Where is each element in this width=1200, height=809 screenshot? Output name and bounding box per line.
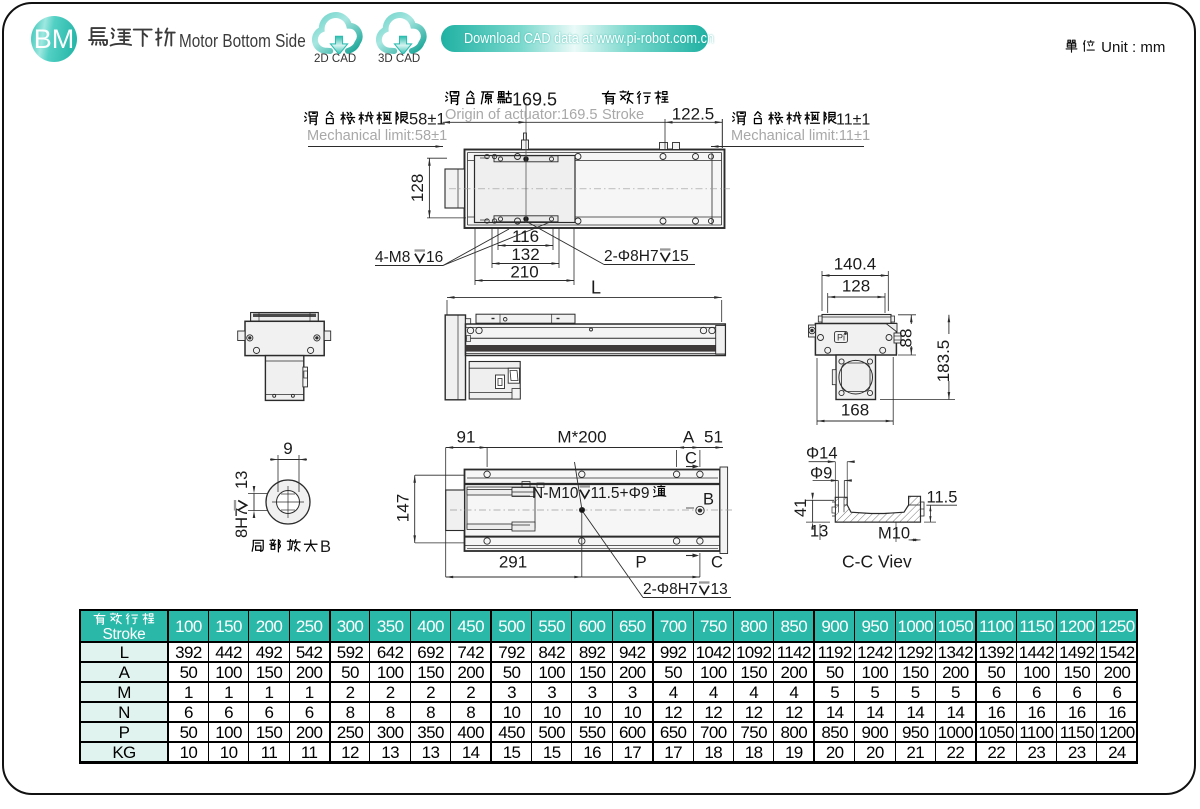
svg-text:Mechanical limit:58±1: Mechanical limit:58±1 <box>307 128 447 144</box>
svg-text:13: 13 <box>810 523 828 541</box>
svg-text:128: 128 <box>842 277 870 296</box>
svg-text:B: B <box>703 491 714 509</box>
svg-text:16: 16 <box>426 249 443 266</box>
svg-text:128: 128 <box>408 174 427 202</box>
svg-text:M*200: M*200 <box>557 428 606 447</box>
svg-text:13: 13 <box>711 581 728 598</box>
svg-text:Φ9: Φ9 <box>810 465 832 483</box>
svg-text:58±1: 58±1 <box>409 111 446 129</box>
svg-text:147: 147 <box>394 494 413 522</box>
svg-text:51: 51 <box>704 428 723 447</box>
svg-text:140.4: 140.4 <box>834 255 877 274</box>
svg-text:2-Φ8H7: 2-Φ8H7 <box>643 581 698 598</box>
svg-text:L: L <box>591 278 601 298</box>
svg-text:Mechanical limit:11±1: Mechanical limit:11±1 <box>731 128 870 144</box>
svg-text:116: 116 <box>512 227 539 246</box>
svg-text:A: A <box>683 428 695 447</box>
svg-text:11±1: 11±1 <box>836 112 870 129</box>
svg-text:C: C <box>711 554 723 572</box>
svg-text:91: 91 <box>457 428 476 447</box>
svg-text:C-C Viev: C-C Viev <box>842 552 912 572</box>
svg-text:N-M10: N-M10 <box>532 485 579 502</box>
svg-text:41: 41 <box>792 499 810 517</box>
svg-text:291: 291 <box>499 553 527 572</box>
svg-text:15: 15 <box>672 248 689 265</box>
svg-text:210: 210 <box>510 263 538 282</box>
svg-text:8H7: 8H7 <box>233 508 251 538</box>
svg-text:9: 9 <box>283 439 292 458</box>
svg-text:Φ14: Φ14 <box>806 445 838 463</box>
svg-text:4-M8: 4-M8 <box>375 249 410 266</box>
svg-text:13: 13 <box>233 471 251 489</box>
svg-text:132: 132 <box>511 245 539 264</box>
svg-text:C: C <box>685 450 697 468</box>
svg-text:11.5: 11.5 <box>927 489 958 507</box>
svg-text:Pi: Pi <box>837 333 845 343</box>
svg-text:Stroke: Stroke <box>602 107 644 123</box>
svg-text:122.5: 122.5 <box>672 105 715 124</box>
svg-text:M10: M10 <box>878 525 910 543</box>
svg-text:11.5+Φ9: 11.5+Φ9 <box>591 485 650 502</box>
svg-text:2-Φ8H7: 2-Φ8H7 <box>604 248 659 265</box>
svg-text:88: 88 <box>896 329 915 348</box>
svg-text:P: P <box>635 553 646 572</box>
svg-text:B: B <box>320 538 331 556</box>
svg-text:Origin of actuator:169.5: Origin of actuator:169.5 <box>445 107 598 123</box>
svg-text:183.5: 183.5 <box>934 340 953 383</box>
svg-text:168: 168 <box>841 401 869 420</box>
